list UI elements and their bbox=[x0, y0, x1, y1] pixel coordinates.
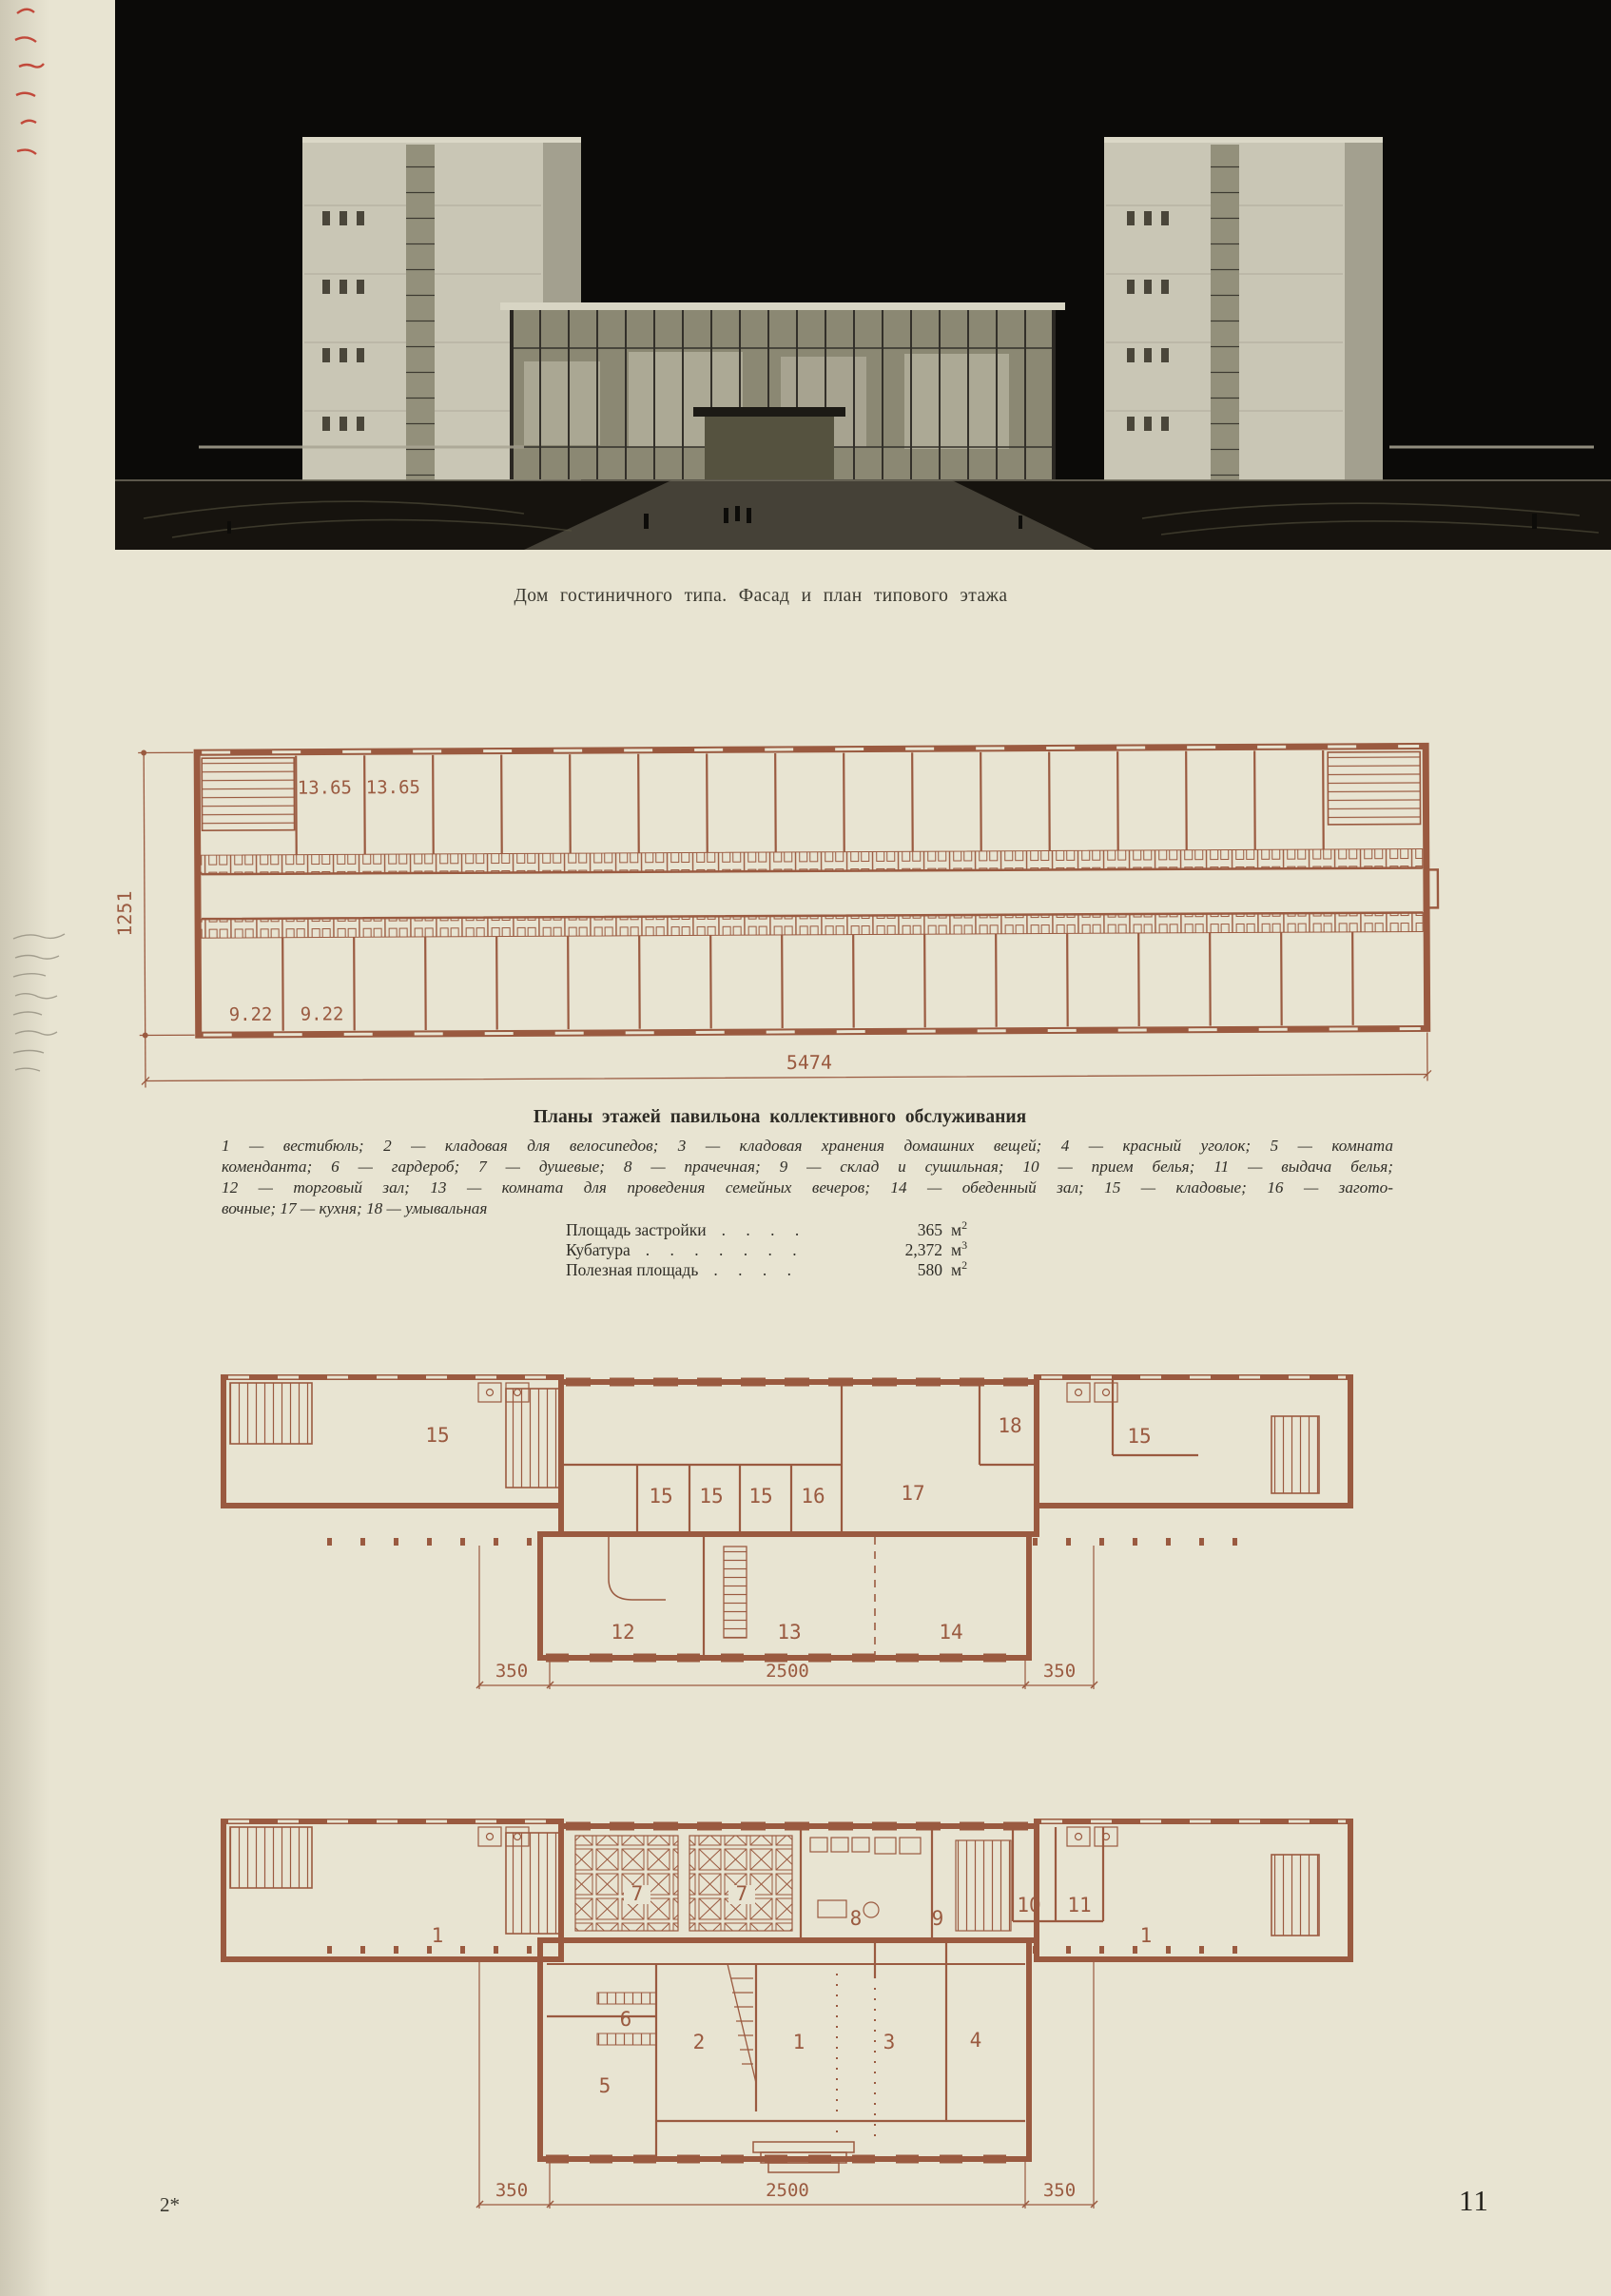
stairwell bbox=[1271, 1416, 1319, 1493]
stair-run bbox=[724, 1547, 747, 1638]
laundry-fixtures bbox=[810, 1838, 921, 1917]
room-label: 15 bbox=[748, 1485, 772, 1508]
room-label: 15 bbox=[649, 1485, 672, 1508]
room-label: 15 bbox=[1127, 1425, 1151, 1448]
room-label: 2 bbox=[693, 2031, 706, 2053]
room-label: 18 bbox=[998, 1414, 1021, 1437]
stats-unit: м3 bbox=[942, 1238, 977, 1260]
room-label: 10 bbox=[1017, 1894, 1040, 1917]
room-label: 14 bbox=[939, 1621, 962, 1644]
facade-photo-art bbox=[115, 0, 1611, 550]
pavilion-plan-ground-floor: 1 7 7 8 9 10 11 1 6 2 1 3 4 5 350 2500 3… bbox=[209, 1798, 1398, 2226]
legend-line: 1 — вестибюль; 2 — кладовая для велосипе… bbox=[222, 1136, 1393, 1157]
room-label: 1 bbox=[1140, 1924, 1153, 1947]
plan-walls bbox=[223, 1377, 1350, 1658]
stats-table: Площадь застройки . . . . 365 м2 Кубатур… bbox=[566, 1218, 977, 1278]
stats-label: Полезная площадь bbox=[566, 1260, 698, 1280]
stats-label: Кубатура bbox=[566, 1240, 631, 1260]
stats-row: Полезная площадь . . . . 580 м2 bbox=[566, 1258, 977, 1278]
photo-caption: Дом гостиничного типа. Фасад и план типо… bbox=[143, 586, 1379, 607]
pavilion-legend: 1 — вестибюль; 2 — кладовая для велосипе… bbox=[222, 1136, 1393, 1219]
room-label: 15 bbox=[699, 1485, 723, 1508]
room-label: 8 bbox=[850, 1907, 863, 1930]
plan-dim-label: 350 bbox=[495, 1661, 528, 1682]
room-label: 9.22 bbox=[229, 1004, 273, 1025]
room-label: 1 bbox=[793, 2031, 805, 2053]
scanned-book-page: Дом гостиничного типа. Фасад и план типо… bbox=[0, 0, 1611, 2296]
room-label: 13.65 bbox=[298, 777, 352, 798]
pavilion-heading: Планы этажей павильона коллективного обс… bbox=[200, 1107, 1360, 1128]
room-label: 13.65 bbox=[366, 777, 420, 798]
dim-labels: 350 2500 350 bbox=[495, 1661, 1076, 1682]
stats-label: Площадь застройки bbox=[566, 1220, 707, 1240]
room-label: 9.22 bbox=[301, 1003, 344, 1024]
room-label: 15 bbox=[425, 1424, 449, 1447]
stats-value: 580 bbox=[868, 1260, 942, 1280]
stats-dots: . . . . bbox=[707, 1220, 868, 1240]
stairwell bbox=[1271, 1855, 1319, 1936]
shower-cabins bbox=[575, 1836, 678, 1931]
legend-line: коменданта; 6 — гардероб; 7 — душевые; 8… bbox=[222, 1157, 1393, 1177]
legend-line: 12 — торговый зал; 13 — комната для пров… bbox=[222, 1177, 1393, 1198]
stairwell-right bbox=[1328, 751, 1420, 825]
stairwell bbox=[230, 1383, 312, 1444]
room-label: 1 bbox=[432, 1924, 444, 1947]
plan-dimension-lines bbox=[476, 1957, 1097, 2208]
stats-unit: м2 bbox=[942, 1218, 977, 1240]
stats-row: Кубатура . . . . . . . 2,372 м3 bbox=[566, 1238, 977, 1258]
room-label: 4 bbox=[970, 2029, 982, 2052]
page-number: 11 bbox=[1459, 2184, 1489, 2218]
room-label: 16 bbox=[801, 1485, 825, 1508]
dim-labels: 350 2500 350 bbox=[495, 2180, 1076, 2201]
stats-value: 365 bbox=[868, 1220, 942, 1240]
room-label: 7 bbox=[736, 1882, 748, 1905]
room-label: 17 bbox=[901, 1482, 924, 1505]
room-label: 13 bbox=[777, 1621, 801, 1644]
legend-line: вочные; 17 — кухня; 18 — умывальная bbox=[222, 1198, 1393, 1219]
margin-red-marks bbox=[2, 4, 59, 194]
plan-walls bbox=[223, 1821, 1350, 2172]
stairwell bbox=[506, 1833, 561, 1934]
stairwell bbox=[230, 1827, 312, 1888]
stats-row: Площадь застройки . . . . 365 м2 bbox=[566, 1218, 977, 1238]
plan-dim-label-width: 5474 bbox=[786, 1051, 832, 1074]
wardrobe-shelves bbox=[597, 2033, 656, 2045]
stairwell-left bbox=[202, 758, 294, 831]
wardrobe-shelves bbox=[597, 1993, 656, 2004]
room-label: 12 bbox=[611, 1621, 634, 1644]
page-binding-shade bbox=[0, 0, 49, 2296]
plan-dim-label: 2500 bbox=[766, 2180, 809, 2201]
room-label: 11 bbox=[1067, 1894, 1091, 1917]
plan-dim-label: 350 bbox=[1043, 2180, 1076, 2201]
pavilion-plan-upper-floor: 15 15 15 15 16 17 18 15 12 13 14 350 250… bbox=[209, 1351, 1398, 1731]
room-label: 5 bbox=[599, 2074, 611, 2097]
plan-dim-label-height: 1251 bbox=[113, 890, 136, 936]
central-pavilion bbox=[500, 302, 1065, 479]
plan-dim-label: 350 bbox=[495, 2180, 528, 2201]
facade-photo bbox=[115, 0, 1611, 550]
signature-mark: 2* bbox=[160, 2193, 180, 2217]
room-label: 6 bbox=[620, 2008, 632, 2031]
plan-dim-label: 2500 bbox=[766, 1661, 809, 1682]
stats-unit: м2 bbox=[942, 1258, 977, 1280]
stats-dots: . . . . bbox=[698, 1260, 868, 1280]
stairwell bbox=[506, 1389, 561, 1488]
right-tower bbox=[1104, 137, 1383, 490]
stats-dots: . . . . . . . bbox=[631, 1240, 868, 1260]
room-label: 9 bbox=[932, 1907, 944, 1930]
drying-racks bbox=[956, 1840, 1011, 1931]
stats-value: 2,372 bbox=[868, 1240, 942, 1260]
room-label: 3 bbox=[883, 2031, 896, 2053]
plan-dim-label: 350 bbox=[1043, 1661, 1076, 1682]
typical-floor-plan: 1251 5474 13.65 13.65 9.22 9.22 bbox=[75, 710, 1485, 1098]
room-label: 7 bbox=[631, 1882, 644, 1905]
stair-triangle bbox=[728, 1964, 756, 2083]
